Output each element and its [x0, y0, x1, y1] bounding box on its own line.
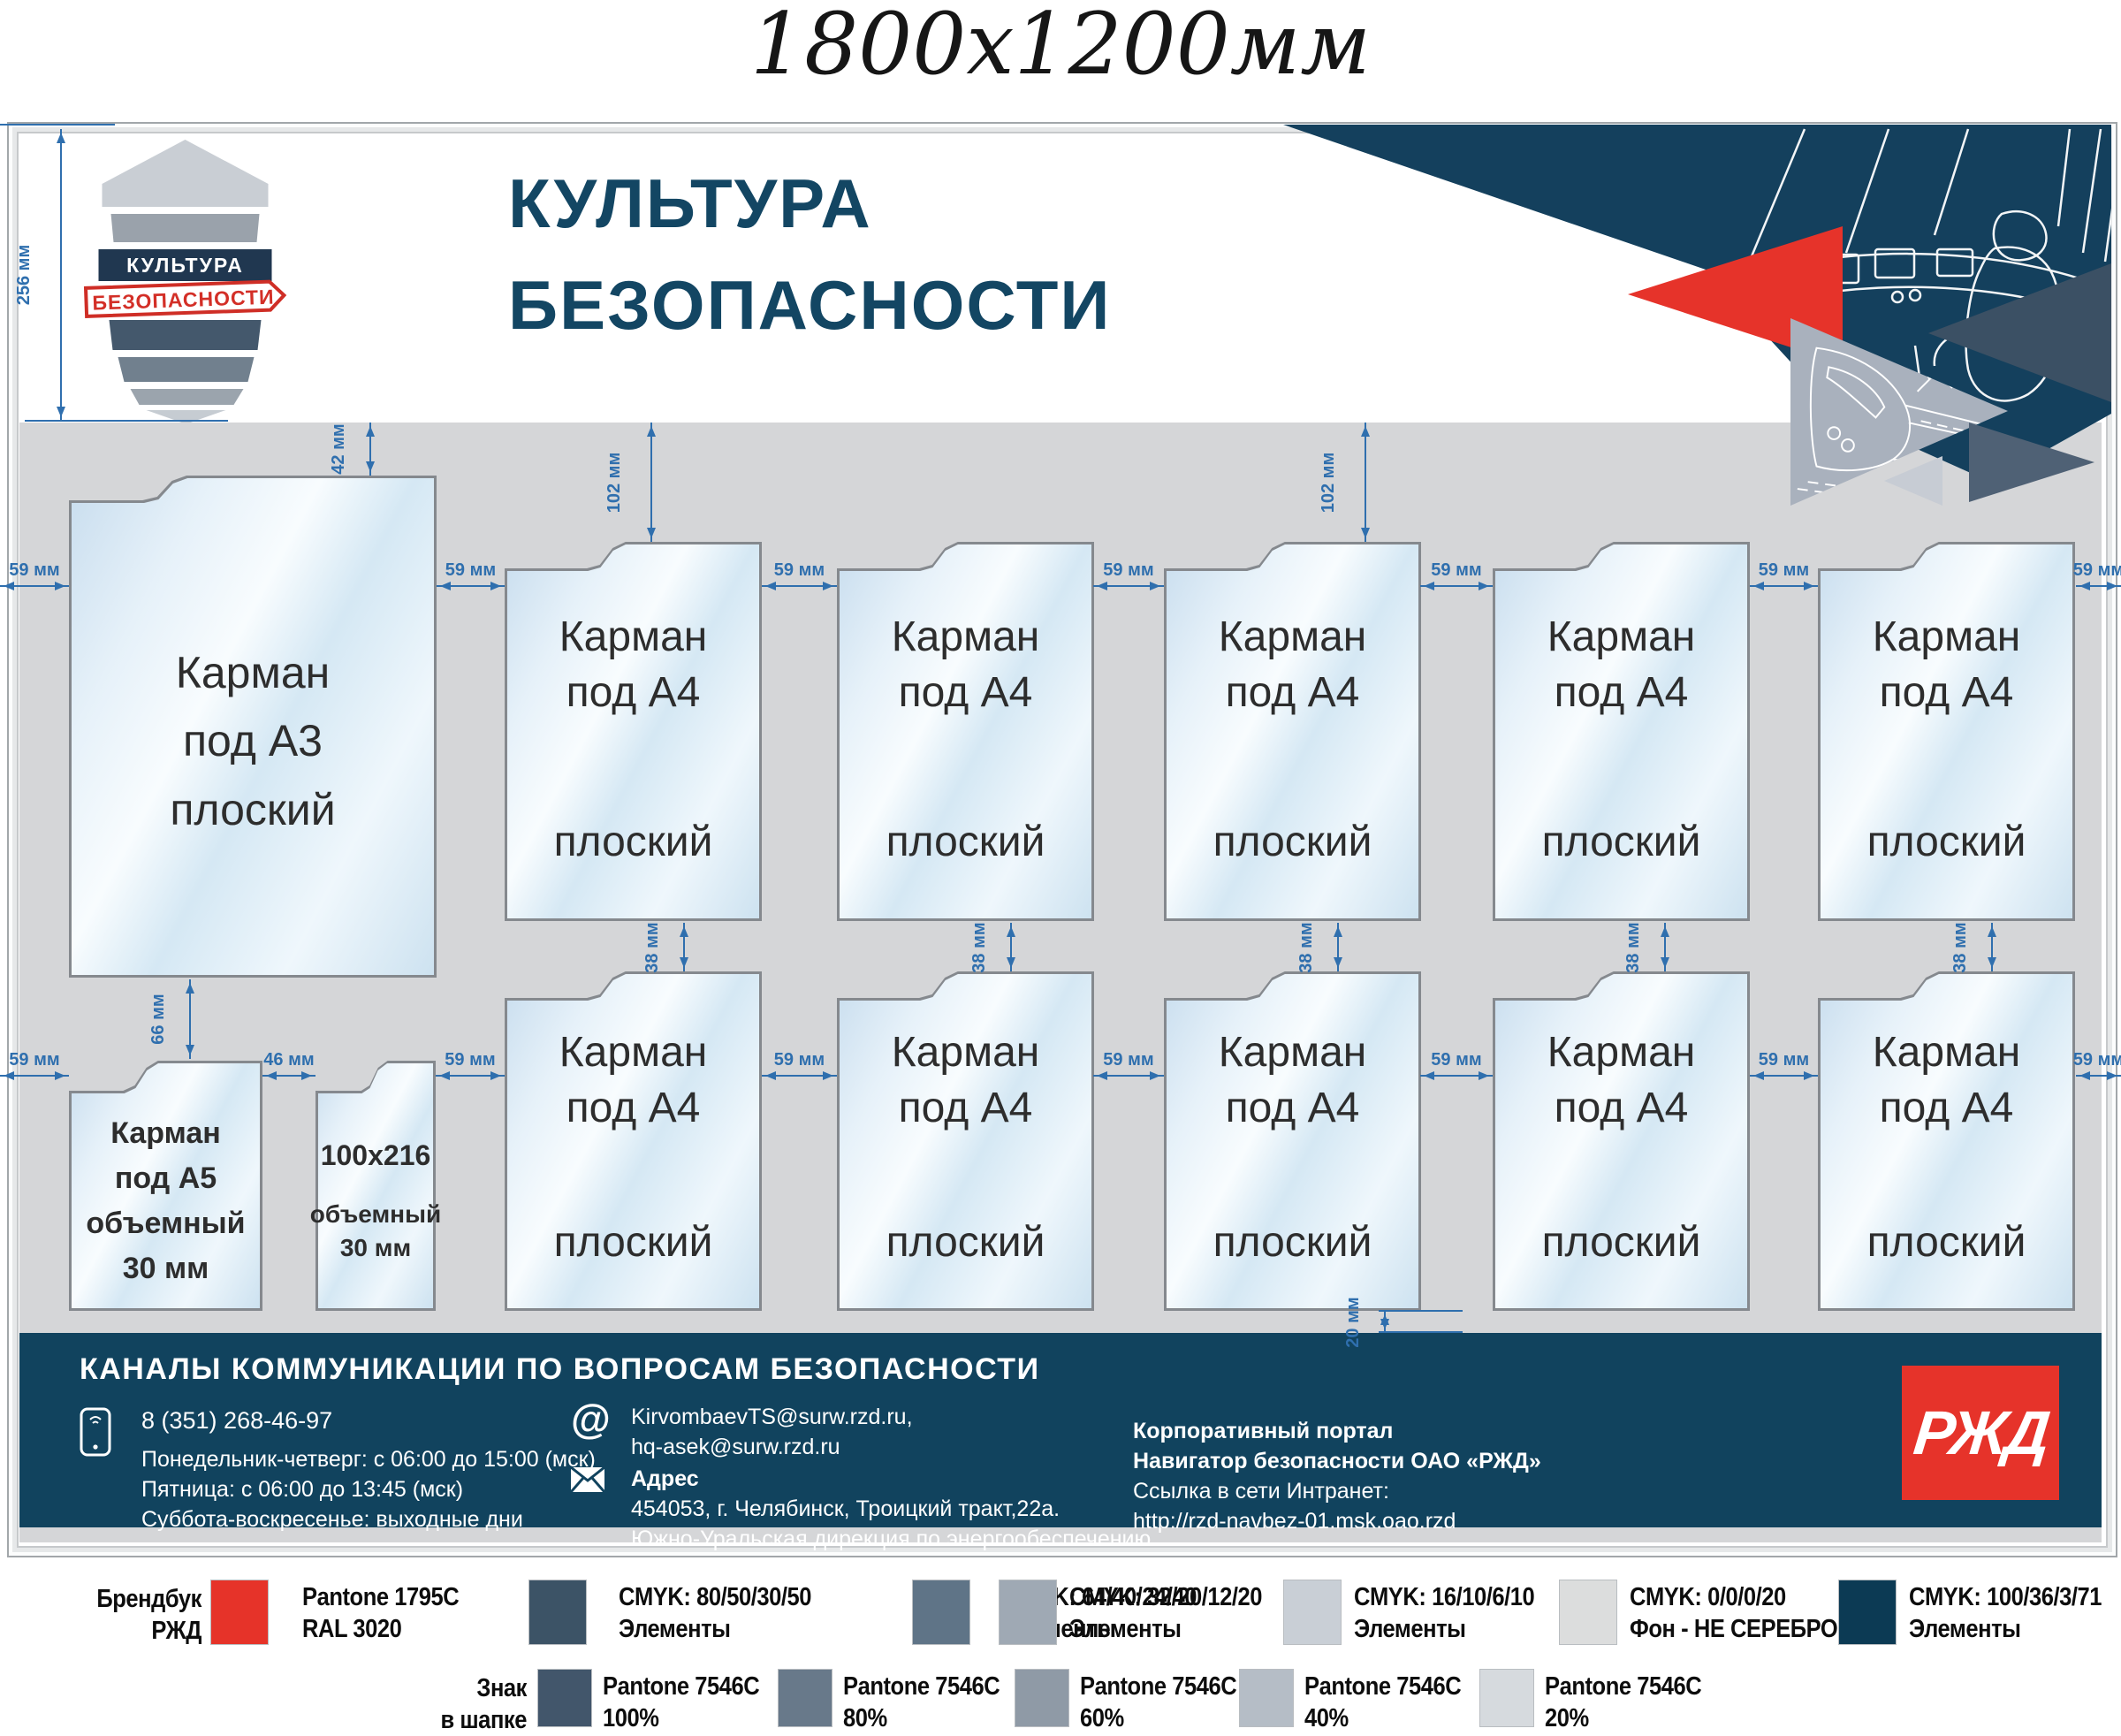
portal-link: http://rzd-navbez-01.msk.oao.rzd: [1133, 1506, 1456, 1536]
dim-38mm: 38 мм: [1648, 923, 1673, 971]
email-line-1: KirvombaevTS@surw.rzd.ru,: [631, 1402, 913, 1432]
schedule-line-2: Пятница: с 06:00 до 13:45 (мск): [141, 1474, 463, 1504]
pocket-label: Карманпод А4: [1219, 1024, 1367, 1137]
dim-59mm: 59 мм: [1093, 1052, 1164, 1080]
dim-102mm: 102 мм: [635, 423, 659, 542]
pocket-label: Карманпод А4: [1547, 1024, 1696, 1137]
pocket-sublabel: плоский: [1542, 814, 1701, 870]
pocket-label: Карманпод А3плоский: [170, 639, 335, 845]
dim-42mm: 42 мм: [353, 423, 378, 476]
dim-59mm: 59 мм: [762, 1052, 837, 1080]
dim-59mm: 59 мм: [0, 562, 69, 590]
color-swatch: [778, 1669, 832, 1727]
legend-entry: CMYK: 80/50/30/50Элементы: [619, 1581, 811, 1645]
color-swatch: [1559, 1580, 1617, 1645]
legend-entry: Pantone 7546C80%: [843, 1671, 1000, 1734]
color-swatch: [1838, 1580, 1897, 1645]
pocket-a4-flat: Карманпод А4 плоский: [1818, 542, 2075, 921]
dim-38mm: 38 мм: [994, 923, 1019, 971]
dim-59mm: 59 мм: [1750, 1052, 1818, 1080]
schedule-line-3: Суббота-воскресенье: выходные дни: [141, 1504, 523, 1534]
dim-38mm: 38 мм: [1975, 923, 2000, 971]
dim-59mm: 59 мм: [437, 562, 505, 590]
communication-bar: КАНАЛЫ КОММУНИКАЦИИ ПО ВОПРОСАМ БЕЗОПАСН…: [19, 1333, 2102, 1527]
pocket-a4-flat: Карманпод А4 плоский: [1818, 971, 2075, 1311]
safety-culture-logo: КУЛЬТУРА БЕЗОПАСНОСТИ: [81, 134, 289, 426]
pocket-a3-flat: Карманпод А3плоский: [69, 476, 437, 978]
legend-entry: Pantone 7546C100%: [603, 1671, 759, 1734]
logo-banner: БЕЗОПАСНОСТИ: [86, 281, 285, 316]
pocket-a4-flat: Карманпод А4 плоский: [837, 971, 1094, 1311]
dim-59mm: 59 мм: [2076, 1052, 2121, 1080]
pocket-a4-flat: Карманпод А4 плоский: [1164, 971, 1421, 1311]
portal-line-2: Навигатор безопасности ОАО «РЖД»: [1133, 1446, 1541, 1476]
legend-sign-label: Знакв шапке: [343, 1672, 527, 1736]
pocket-100x216-volume: 100х216 объемный30 мм: [315, 1061, 436, 1311]
pocket-sublabel: плоский: [554, 1214, 713, 1270]
legend-entry: CMYK: 0/0/0/20Фон - НЕ СЕРЕБРО: [1630, 1581, 1837, 1645]
legend-entry: Pantone 7546C40%: [1304, 1671, 1461, 1734]
dim-256mm: 256 мм: [44, 129, 69, 421]
dim-59mm: 59 мм: [436, 1052, 505, 1080]
dim-59mm: 59 мм: [1420, 1052, 1493, 1080]
pocket-a4-flat: Карманпод А4 плоский: [505, 542, 762, 921]
pocket-a5-volume: Карманпод А5 объемный30 мм: [69, 1061, 262, 1311]
dim-38mm: 38 мм: [1321, 923, 1346, 971]
dim-extension-line: [0, 124, 115, 126]
pocket-label: Карманпод А4: [1873, 1024, 2021, 1137]
pocket-label: Карманпод А5 объемный30 мм: [86, 1111, 245, 1291]
pocket-sublabel: плоский: [1867, 814, 2026, 870]
color-swatch: [1283, 1580, 1342, 1645]
color-swatch: [1239, 1669, 1294, 1727]
pocket-a4-flat: Карманпод А4 плоский: [837, 542, 1094, 921]
pocket-sublabel: плоский: [1867, 1214, 2026, 1270]
pocket-sublabel: плоский: [886, 814, 1045, 870]
logo-title: КУЛЬТУРА: [126, 254, 244, 277]
dim-66mm: 66 мм: [173, 979, 198, 1059]
portal-line-3: Ссылка в сети Интранет:: [1133, 1476, 1389, 1506]
pocket-label: Карманпод А4: [1219, 609, 1367, 721]
pocket-sublabel: объемный30 мм: [310, 1198, 441, 1265]
at-icon: @: [571, 1395, 611, 1443]
color-swatch: [537, 1669, 592, 1727]
pocket-sublabel: плоский: [554, 814, 713, 870]
pocket-label: Карманпод А4: [1547, 609, 1696, 721]
dim-59mm: 59 мм: [762, 562, 837, 590]
color-swatch: [1015, 1669, 1069, 1727]
pocket-label: Карманпод А4: [1873, 609, 2021, 721]
color-swatch: [1479, 1669, 1534, 1727]
pocket-sublabel: плоский: [1213, 814, 1372, 870]
color-swatch: [999, 1580, 1057, 1645]
legend-entry: Pantone 7546C20%: [1545, 1671, 1701, 1734]
schedule-line-1: Понедельник-четверг: с 06:00 до 15:00 (м…: [141, 1444, 596, 1474]
address-line-1: 454053, г. Челябинск, Троицкий тракт,22а…: [631, 1494, 1060, 1524]
phone-icon: [80, 1407, 111, 1457]
color-swatch: [210, 1580, 269, 1645]
legend-entry: CMYK: 32/20/12/20Элементы: [1069, 1581, 1262, 1645]
address-label: Адрес: [631, 1464, 699, 1494]
dim-20mm: 20 мм: [1368, 1311, 1393, 1333]
dim-46mm: 46 мм: [262, 1052, 315, 1080]
header-title-line1: КУЛЬТУРА: [508, 164, 872, 244]
page-title: 1800х1200мм: [0, 0, 2121, 94]
portal-line-1: Корпоративный портал: [1133, 1416, 1393, 1446]
pocket-label: Карманпод А4: [892, 609, 1040, 721]
dim-38mm: 38 мм: [667, 923, 692, 971]
pocket-sublabel: плоский: [886, 1214, 1045, 1270]
email-line-2: hq-asek@surw.rzd.ru: [631, 1432, 840, 1462]
legend-entry: CMYK: 100/36/3/71Элементы: [1909, 1581, 2102, 1645]
pocket-a4-flat: Карманпод А4 плоский: [1164, 542, 1421, 921]
color-swatch: [528, 1580, 587, 1645]
dim-59mm: 59 мм: [1093, 562, 1164, 590]
legend-entry: Pantone 7546C60%: [1080, 1671, 1236, 1734]
pocket-label: Карманпод А4: [892, 1024, 1040, 1137]
pocket-a4-flat: Карманпод А4 плоский: [1493, 542, 1750, 921]
legend-entry: CMYK: 16/10/6/10Элементы: [1354, 1581, 1534, 1645]
pocket-sublabel: плоский: [1542, 1214, 1701, 1270]
address-line-2: Южно-Уральская дирекция по энергообеспеч…: [631, 1524, 1151, 1554]
color-swatch: [912, 1580, 970, 1645]
logo-cap: [103, 140, 269, 207]
legend-brandbook-label: БрендбукРЖД: [56, 1583, 201, 1647]
pocket-label: 100х216: [321, 1137, 431, 1175]
legend-entry: Pantone 1795CRAL 3020: [302, 1581, 459, 1645]
pocket-a4-flat: Карманпод А4 плоский: [505, 971, 762, 1311]
envelope-icon: [571, 1467, 604, 1492]
pocket-label: Карманпод А4: [559, 609, 708, 721]
dim-59mm: 59 мм: [1420, 562, 1493, 590]
header-title-line2: БЕЗОПАСНОСТИ: [508, 265, 1111, 346]
communication-bar-title: КАНАЛЫ КОММУНИКАЦИИ ПО ВОПРОСАМ БЕЗОПАСН…: [80, 1352, 1040, 1387]
dim-59mm: 59 мм: [1750, 562, 1818, 590]
pocket-sublabel: плоский: [1213, 1214, 1372, 1270]
pocket-a4-flat: Карманпод А4 плоский: [1493, 971, 1750, 1311]
dim-59mm: 59 мм: [2076, 562, 2121, 590]
rzd-logo: РЖД: [1902, 1366, 2059, 1500]
pocket-label: Карманпод А4: [559, 1024, 708, 1137]
dim-59mm: 59 мм: [0, 1052, 69, 1080]
dim-102mm: 102 мм: [1349, 423, 1373, 542]
phone-number: 8 (351) 268-46-97: [141, 1405, 332, 1435]
